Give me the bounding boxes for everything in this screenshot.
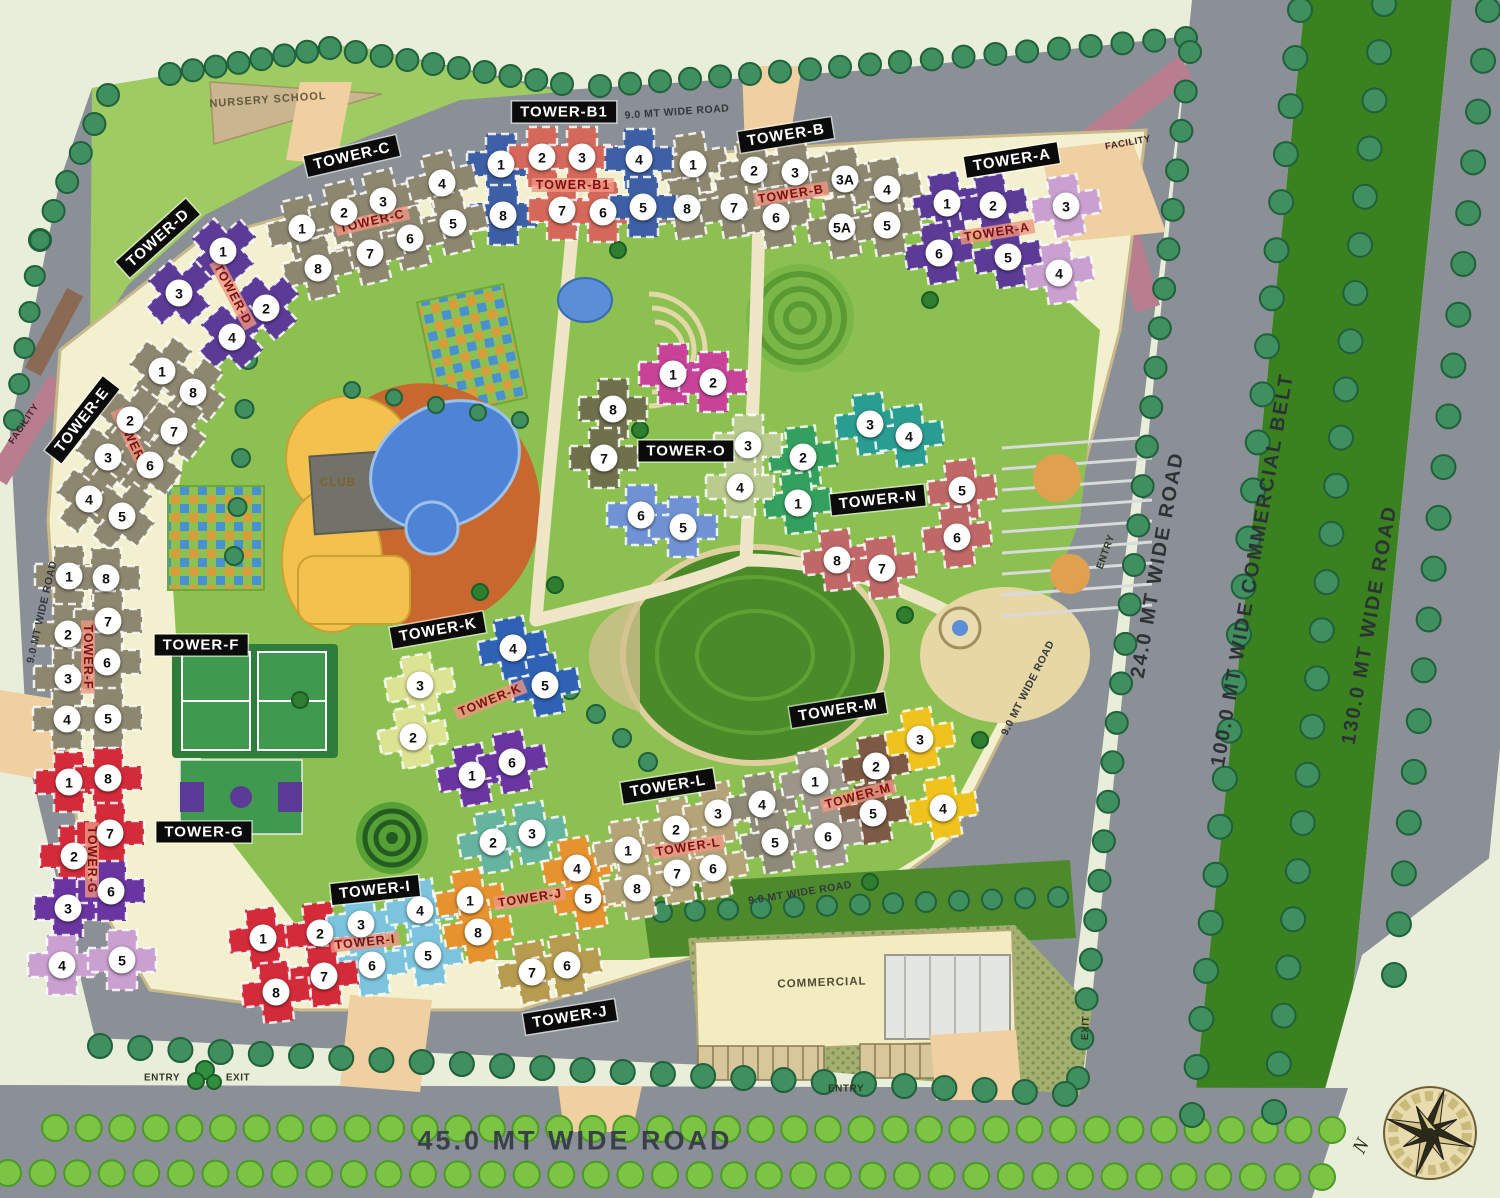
unit-circle-tower-o-2: 2 xyxy=(700,369,727,396)
unit-circle-tower-g-6: 6 xyxy=(98,878,125,905)
unit-circle-tower-i-5: 5 xyxy=(415,942,442,969)
unit-circle-tower-m-3: 3 xyxy=(907,726,934,753)
road-label-bottom-9mt: 9.0 MT WIDE ROAD xyxy=(747,879,852,907)
unit-circle-tower-c-4: 4 xyxy=(429,170,456,197)
unit-circle-tower-f-8: 8 xyxy=(93,565,120,592)
tower-red-label-tower-j: TOWER-J xyxy=(493,885,567,910)
tower-red-label-tower-f: TOWER-F xyxy=(81,620,95,693)
unit-circle-tower-n-7: 7 xyxy=(869,555,896,582)
unit-circle-tower-d-4: 4 xyxy=(219,324,246,351)
unit-circle-tower-m-4: 4 xyxy=(930,795,957,822)
unit-circle-tower-c-6: 6 xyxy=(397,225,424,252)
unit-circle-tower-i-1: 1 xyxy=(250,925,277,952)
unit-circle-tower-b-8: 8 xyxy=(674,195,701,222)
road-label-100mt-belt: 100.0 MT WIDE COMMERCIAL BELT xyxy=(1207,371,1299,768)
area-label-facility-left: FACILITY xyxy=(7,402,42,446)
unit-circle-tower-o-8: 8 xyxy=(600,396,627,423)
unit-circle-tower-b1-6: 6 xyxy=(590,199,617,226)
tower-label-tower-i: TOWER-I xyxy=(330,875,419,905)
unit-circle-tower-j-4: 4 xyxy=(564,855,591,882)
unit-circle-tower-m-1: 1 xyxy=(802,768,829,795)
unit-circle-tower-g-5: 5 xyxy=(109,947,136,974)
unit-circle-tower-b-4: 4 xyxy=(874,176,901,203)
unit-circle-tower-o-7: 7 xyxy=(591,445,618,472)
unit-circle-tower-o-1: 1 xyxy=(660,361,687,388)
unit-circle-tower-g-2: 2 xyxy=(61,843,88,870)
unit-circle-tower-f-3: 3 xyxy=(55,665,82,692)
unit-circle-tower-b1-1: 1 xyxy=(488,151,515,178)
unit-circle-tower-i-6: 6 xyxy=(359,952,386,979)
unit-circle-tower-d-3: 3 xyxy=(166,280,193,307)
unit-circle-tower-e-3: 3 xyxy=(95,444,122,471)
unit-circle-tower-i-3: 3 xyxy=(348,911,375,938)
label-layer: 9.0 MT WIDE ROAD9.0 MT WIDE ROAD9.0 MT W… xyxy=(0,0,1500,1198)
unit-circle-tower-i-2: 2 xyxy=(307,920,334,947)
unit-circle-tower-k-5: 5 xyxy=(532,672,559,699)
road-label-left-9mt: 9.0 MT WIDE ROAD xyxy=(24,560,59,665)
tower-label-tower-l: TOWER-L xyxy=(621,768,716,803)
unit-circle-tower-o-3: 3 xyxy=(735,432,762,459)
unit-circle-tower-a-2: 2 xyxy=(980,192,1007,219)
unit-circle-tower-b-3: 3 xyxy=(782,159,809,186)
area-label-facility-top: FACILITY xyxy=(1104,134,1151,153)
road-label-45mt: 45.0 MT WIDE ROAD xyxy=(417,1126,732,1157)
unit-circle-tower-c-5: 5 xyxy=(440,210,467,237)
tower-label-tower-b1: TOWER-B1 xyxy=(512,102,616,123)
road-label-130mt: 130.0 MT WIDE ROAD xyxy=(1338,503,1403,746)
unit-circle-tower-f-2: 2 xyxy=(55,621,82,648)
unit-circle-tower-l-7: 7 xyxy=(664,860,691,887)
unit-circle-tower-a-1: 1 xyxy=(934,190,961,217)
tower-label-tower-g: TOWER-G xyxy=(156,822,251,843)
unit-circle-tower-e-6: 6 xyxy=(137,452,164,479)
unit-circle-tower-j-1: 1 xyxy=(457,887,484,914)
unit-circle-tower-e-4: 4 xyxy=(76,486,103,513)
unit-circle-tower-g-3: 3 xyxy=(55,895,82,922)
unit-circle-tower-j-5: 5 xyxy=(575,885,602,912)
unit-circle-tower-e-2: 2 xyxy=(117,407,144,434)
unit-circle-tower-f-6: 6 xyxy=(94,649,121,676)
tower-red-label-tower-k: TOWER-K xyxy=(453,680,527,721)
unit-circle-tower-l-5: 5 xyxy=(762,829,789,856)
road-label-right-9mt: 9.0 MT WIDE ROAD xyxy=(999,639,1057,738)
unit-circle-tower-b-1: 1 xyxy=(680,151,707,178)
unit-circle-tower-a-3: 3 xyxy=(1053,193,1080,220)
tower-label-tower-b: TOWER-B xyxy=(738,117,835,153)
unit-circle-tower-i-8: 8 xyxy=(263,979,290,1006)
unit-circle-tower-b-6: 6 xyxy=(763,204,790,231)
area-label-entry-bottom: ENTRY xyxy=(828,1084,864,1095)
unit-circle-tower-b-7: 7 xyxy=(721,194,748,221)
unit-circle-tower-d-1: 1 xyxy=(210,238,237,265)
unit-circle-tower-b-5A: 5A xyxy=(829,214,856,241)
unit-circle-tower-b1-3: 3 xyxy=(569,144,596,171)
tower-label-tower-j: TOWER-J xyxy=(523,999,617,1034)
unit-circle-tower-n-6: 6 xyxy=(944,524,971,551)
tower-label-tower-f: TOWER-F xyxy=(155,635,248,656)
site-plan-map: N 9.0 MT WIDE ROAD9.0 MT WIDE ROAD9.0 MT… xyxy=(0,0,1500,1198)
road-label-top-9mt: 9.0 MT WIDE ROAD xyxy=(624,102,729,121)
unit-circle-tower-n-8: 8 xyxy=(824,547,851,574)
unit-circle-tower-c-3: 3 xyxy=(370,188,397,215)
unit-circle-tower-g-7: 7 xyxy=(97,820,124,847)
unit-circle-tower-o-5: 5 xyxy=(670,514,697,541)
unit-circle-tower-c-8: 8 xyxy=(305,255,332,282)
unit-circle-tower-b-5: 5 xyxy=(874,212,901,239)
unit-circle-tower-c-1: 1 xyxy=(289,215,316,242)
tower-label-tower-n: TOWER-N xyxy=(830,485,926,516)
unit-circle-tower-f-7: 7 xyxy=(95,608,122,635)
unit-circle-tower-c-7: 7 xyxy=(357,240,384,267)
area-label-entry-bottom-left: ENTRY xyxy=(144,1073,180,1084)
unit-circle-tower-k-4: 4 xyxy=(500,635,527,662)
unit-circle-tower-b1-5: 5 xyxy=(630,194,657,221)
unit-circle-tower-f-1: 1 xyxy=(56,563,83,590)
tower-label-tower-m: TOWER-M xyxy=(789,692,887,728)
tower-label-tower-d: TOWER-D xyxy=(116,199,200,278)
unit-circle-tower-e-7: 7 xyxy=(161,418,188,445)
tower-label-tower-o: TOWER-O xyxy=(638,441,733,462)
unit-circle-tower-b1-4: 4 xyxy=(626,146,653,173)
unit-circle-tower-b-3A: 3A xyxy=(832,166,859,193)
unit-circle-tower-b1-8: 8 xyxy=(490,202,517,229)
unit-circle-tower-l-1: 1 xyxy=(615,837,642,864)
unit-circle-tower-j-2: 2 xyxy=(480,829,507,856)
tower-label-tower-a: TOWER-A xyxy=(964,142,1061,178)
unit-circle-tower-l-3: 3 xyxy=(705,800,732,827)
unit-circle-tower-f-5: 5 xyxy=(95,705,122,732)
unit-circle-tower-i-7: 7 xyxy=(311,963,338,990)
unit-circle-tower-a-6: 6 xyxy=(926,240,953,267)
unit-circle-tower-d-2: 2 xyxy=(253,295,280,322)
unit-circle-tower-m-6: 6 xyxy=(815,823,842,850)
unit-circle-tower-k-1: 1 xyxy=(459,762,486,789)
unit-circle-tower-c-2: 2 xyxy=(331,199,358,226)
unit-circle-tower-m-5: 5 xyxy=(860,800,887,827)
unit-circle-tower-n-2: 2 xyxy=(790,444,817,471)
unit-circle-tower-g-1: 1 xyxy=(56,769,83,796)
unit-circle-tower-k-3: 3 xyxy=(407,672,434,699)
unit-circle-tower-n-3: 3 xyxy=(857,411,884,438)
unit-circle-tower-k-6: 6 xyxy=(499,749,526,776)
unit-circle-tower-j-3: 3 xyxy=(519,820,546,847)
area-label-exit-bottom-left: EXIT xyxy=(226,1073,250,1084)
tower-label-tower-c: TOWER-C xyxy=(304,135,401,177)
unit-circle-tower-j-6: 6 xyxy=(554,952,581,979)
unit-circle-tower-k-2: 2 xyxy=(400,724,427,751)
unit-circle-tower-n-1: 1 xyxy=(785,490,812,517)
unit-circle-tower-g-8: 8 xyxy=(95,765,122,792)
unit-circle-tower-n-5: 5 xyxy=(949,477,976,504)
area-label-commercial: COMMERCIAL xyxy=(777,975,867,990)
tower-red-label-tower-d: TOWER-D xyxy=(209,258,256,330)
unit-circle-tower-g-4: 4 xyxy=(49,952,76,979)
unit-circle-tower-l-8: 8 xyxy=(624,875,651,902)
unit-circle-tower-m-2: 2 xyxy=(863,753,890,780)
unit-circle-tower-i-4: 4 xyxy=(407,897,434,924)
unit-circle-tower-o-4: 4 xyxy=(727,474,754,501)
road-label-24mt: 24.0 MT WIDE ROAD xyxy=(1127,450,1190,680)
unit-circle-tower-e-1: 1 xyxy=(149,358,176,385)
tower-red-label-tower-b1: TOWER-B1 xyxy=(532,178,614,192)
unit-circle-tower-l-4: 4 xyxy=(749,791,776,818)
tower-label-tower-k: TOWER-K xyxy=(390,611,487,648)
unit-circle-tower-b1-2: 2 xyxy=(529,144,556,171)
unit-circle-tower-j-8: 8 xyxy=(465,919,492,946)
unit-circle-tower-a-4: 4 xyxy=(1046,260,1073,287)
unit-circle-tower-o-6: 6 xyxy=(628,502,655,529)
area-label-club: CLUB xyxy=(320,477,356,489)
unit-circle-tower-n-4: 4 xyxy=(896,423,923,450)
area-label-nursery-school: NURSERY SCHOOL xyxy=(209,90,327,110)
tower-red-label-tower-a: TOWER-A xyxy=(959,219,1035,244)
unit-circle-tower-e-5: 5 xyxy=(109,503,136,530)
unit-circle-tower-f-4: 4 xyxy=(54,706,81,733)
area-label-exit-right: EXIT xyxy=(1080,1016,1092,1041)
unit-circle-tower-e-8: 8 xyxy=(180,379,207,406)
area-label-entry-right: ENTRY xyxy=(1095,533,1118,571)
unit-circle-tower-b-2: 2 xyxy=(741,157,768,184)
unit-circle-tower-j-7: 7 xyxy=(519,959,546,986)
unit-circle-tower-b1-7: 7 xyxy=(549,197,576,224)
unit-circle-tower-l-2: 2 xyxy=(663,816,690,843)
unit-circle-tower-l-6: 6 xyxy=(700,855,727,882)
unit-circle-tower-a-5: 5 xyxy=(995,244,1022,271)
